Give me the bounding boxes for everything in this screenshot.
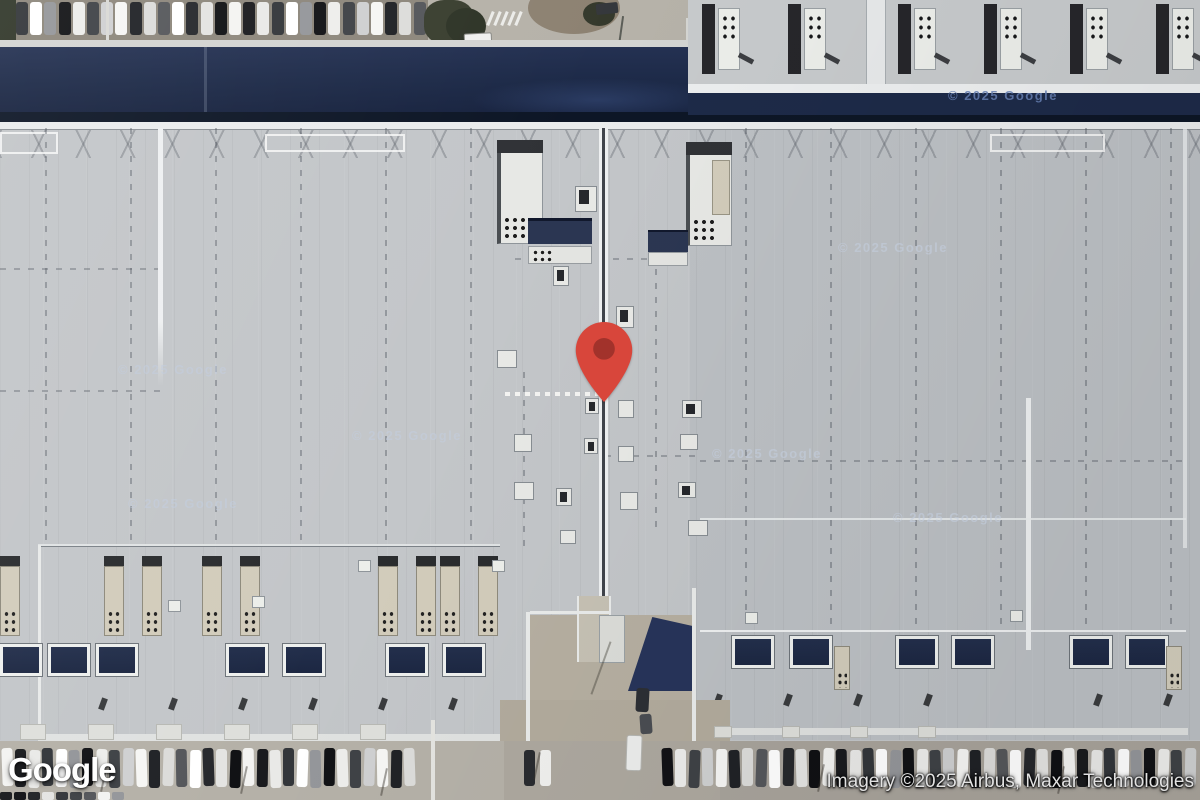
google-watermark: © 2025 Google (712, 446, 822, 461)
google-logo[interactable]: Google (8, 751, 116, 789)
google-watermark: © 2025 Google (838, 240, 948, 255)
location-pin-icon[interactable] (575, 322, 633, 402)
google-watermark: © 2025 Google (948, 88, 1058, 103)
google-watermark: © 2025 Google (128, 496, 238, 511)
google-watermark: © 2025 Google (893, 510, 1003, 525)
google-watermark: © 2025 Google (118, 362, 228, 377)
satellite-map[interactable]: © 2025 Google© 2025 Google© 2025 Google©… (0, 0, 1200, 800)
imagery-attribution: Imagery ©2025 Airbus, Maxar Technologies (827, 771, 1194, 793)
google-watermark: © 2025 Google (352, 428, 462, 443)
